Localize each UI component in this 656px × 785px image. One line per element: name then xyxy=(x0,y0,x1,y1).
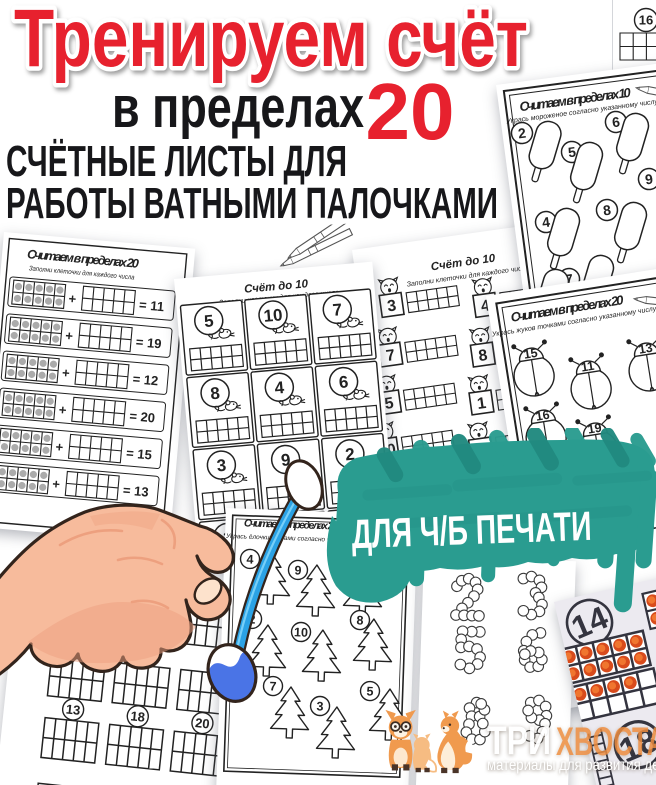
svg-text:6: 6 xyxy=(338,372,349,392)
svg-text:материалы для развития дет: материалы для развития дет xyxy=(487,757,656,774)
svg-text:20: 20 xyxy=(366,67,455,156)
svg-text:15: 15 xyxy=(523,346,539,362)
svg-text:= 12: = 12 xyxy=(132,371,159,388)
svg-text:5: 5 xyxy=(366,684,373,698)
svg-text:РАБОТЫ ВАТНЫМИ ПАЛОЧКАМИ: РАБОТЫ ВАТНЫМИ ПАЛОЧКАМИ xyxy=(6,179,498,228)
svg-text:в пределах: в пределах xyxy=(112,75,364,140)
svg-text:= 19: = 19 xyxy=(135,334,162,351)
svg-text:13: 13 xyxy=(638,341,654,357)
svg-text:10: 10 xyxy=(263,305,284,326)
svg-text:11: 11 xyxy=(580,359,595,375)
svg-text:= 11: = 11 xyxy=(139,297,165,314)
svg-text:16: 16 xyxy=(535,408,551,424)
svg-text:ДЛЯ Ч/Б ПЕЧАТИ: ДЛЯ Ч/Б ПЕЧАТИ xyxy=(351,503,592,557)
svg-text:= 20: = 20 xyxy=(129,408,156,425)
svg-text:5: 5 xyxy=(203,311,214,331)
svg-text:8: 8 xyxy=(210,384,221,404)
svg-text:7: 7 xyxy=(332,300,343,320)
